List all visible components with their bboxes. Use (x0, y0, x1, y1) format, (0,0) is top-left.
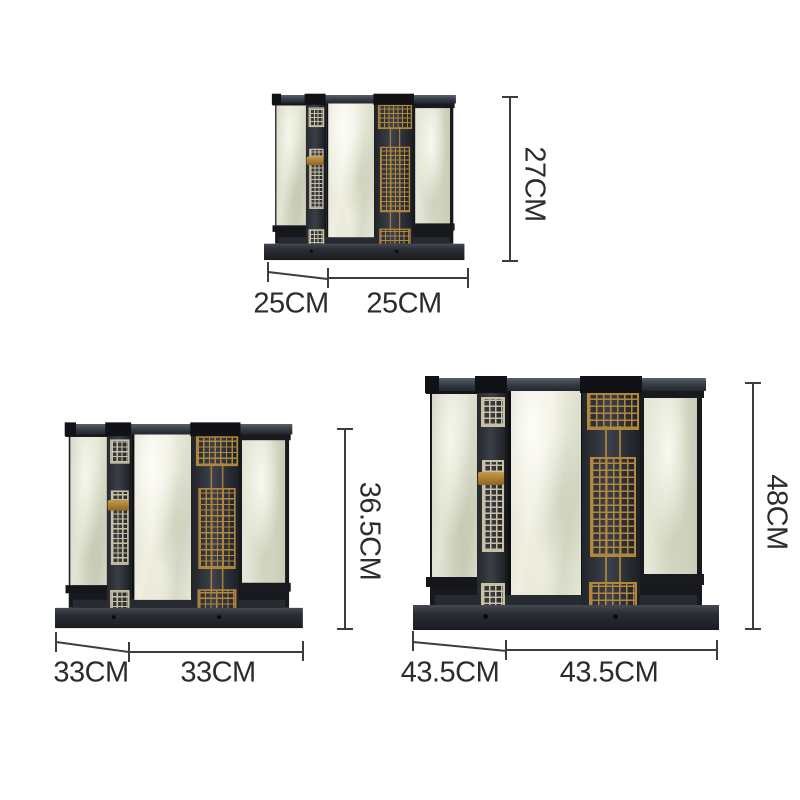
width-dimension-line-medium (129, 651, 303, 653)
cap-riser (373, 94, 414, 105)
width-dimension-line-small (328, 277, 468, 279)
product-photo-medium (55, 424, 361, 676)
marble-panel-left (276, 105, 306, 226)
fretwork-icon (110, 439, 129, 463)
depth-dimension-line-large (413, 641, 506, 652)
marble-panel-center (132, 435, 193, 600)
latch-icon (307, 157, 324, 166)
size-chart-diagram: 27CM 25CM 25CM 36.5CM (0, 0, 800, 800)
height-dimension-line-small (509, 96, 511, 262)
fretwork-icon (378, 105, 412, 129)
width-label-small: 25CM (366, 288, 441, 321)
cap-riser (190, 422, 240, 436)
pillar-lamp-image (55, 424, 303, 628)
fretwork-icon (590, 457, 636, 557)
marble-panel-right (644, 397, 697, 575)
lamp-base (413, 605, 719, 630)
depth-label-medium: 33CM (53, 657, 128, 690)
lamp-base (264, 244, 464, 260)
corner-post-narrow (107, 435, 130, 612)
corner-post-wide (375, 102, 413, 252)
pillar-lamp-image (264, 95, 464, 260)
cap-riser (580, 376, 642, 393)
cap-riser (425, 376, 439, 393)
fretwork-icon (380, 147, 410, 213)
depth-label-small: 25CM (253, 288, 328, 321)
marble-panel-left (432, 393, 478, 577)
marble-panel-left (70, 436, 107, 585)
height-dimension-line-large (752, 382, 754, 630)
fretwork-icon (198, 488, 235, 569)
fretwork-icon (481, 397, 505, 427)
pillar-lamp-image (413, 378, 719, 630)
marble-panel-center (508, 391, 583, 595)
cap-riser (65, 422, 76, 436)
width-dimension-line-large (506, 649, 717, 651)
marble-panel-right (242, 439, 285, 583)
latch-icon (108, 500, 129, 511)
height-label-small: 27CM (518, 146, 551, 221)
lamp-cap (66, 424, 293, 435)
corner-post-narrow (306, 104, 324, 247)
cap-riser (305, 94, 326, 105)
cap-riser (475, 376, 507, 393)
width-label-large: 43.5CM (560, 657, 659, 690)
fretwork-icon (196, 436, 238, 466)
cap-riser (105, 422, 131, 436)
latch-icon (478, 472, 504, 485)
corner-post-wide (192, 432, 239, 617)
fretwork-icon (309, 107, 325, 127)
height-label-large: 48CM (760, 474, 793, 549)
cap-riser (272, 94, 281, 105)
lamp-base (55, 608, 303, 628)
lamp-cap (273, 95, 456, 104)
product-photo-large (413, 378, 719, 630)
corner-post-narrow (477, 391, 505, 610)
marble-panel-right (415, 107, 450, 224)
height-dimension-line-medium (344, 428, 346, 630)
depth-label-large: 43.5CM (401, 657, 500, 690)
fretwork-icon (587, 393, 639, 430)
width-label-medium: 33CM (180, 657, 255, 690)
corner-post-wide (582, 388, 640, 617)
lamp-cap (426, 378, 706, 391)
marble-panel-center (326, 104, 375, 238)
height-label-medium: 36.5CM (353, 482, 386, 581)
